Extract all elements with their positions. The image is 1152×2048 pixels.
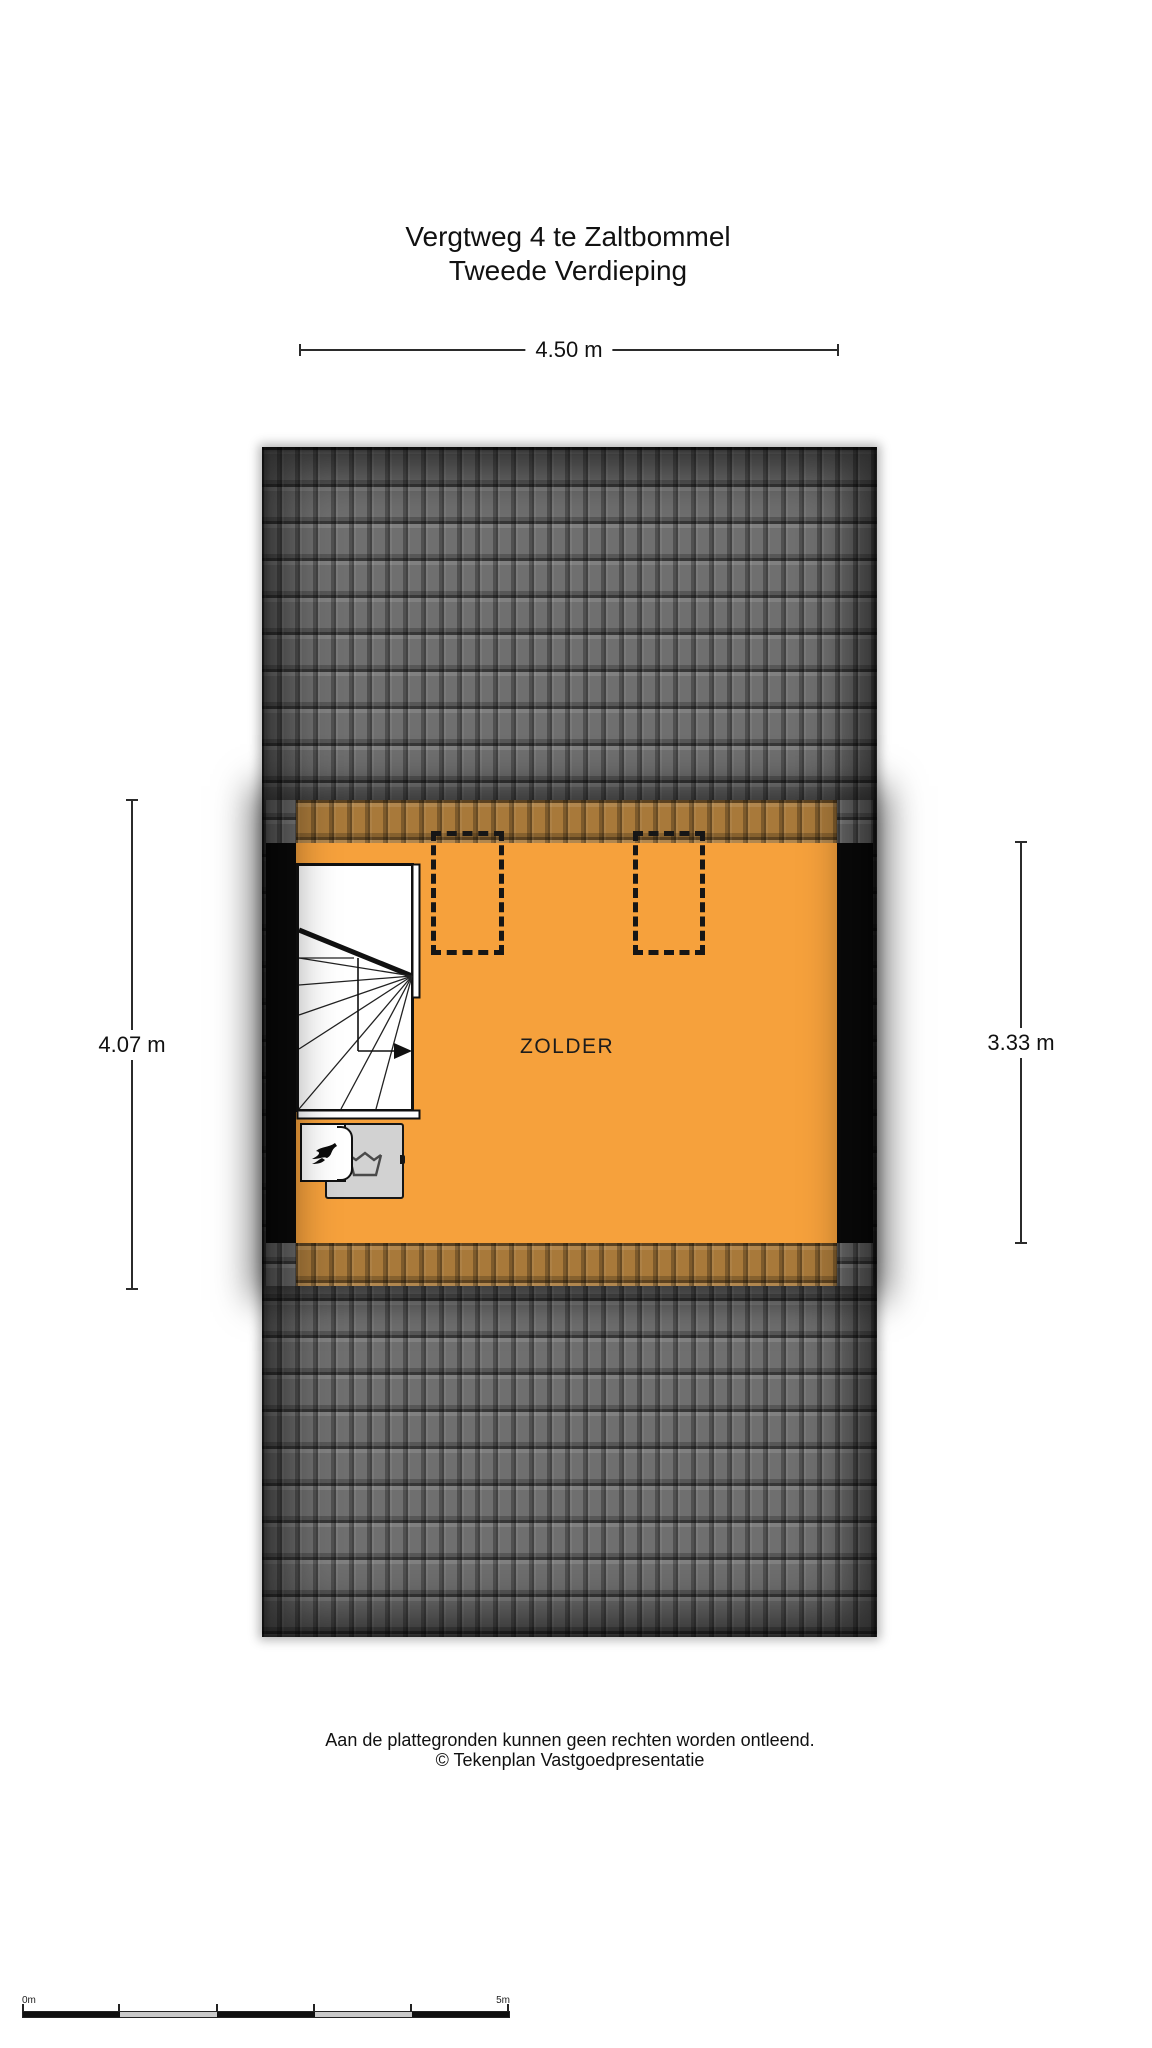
scale-bar-segments xyxy=(22,2011,510,2018)
disclaimer-line2: © Tekenplan Vastgoedpresentatie xyxy=(0,1750,1146,1770)
flame-icon xyxy=(308,1140,338,1166)
scale-segment xyxy=(120,2012,217,2017)
room-label: ZOLDER xyxy=(520,1035,614,1059)
scale-segment xyxy=(412,2012,509,2017)
disclaimer: Aan de plattegronden kunnen geen rechten… xyxy=(0,1730,1146,1770)
washing-machine-knob xyxy=(400,1155,405,1164)
dimension-line-top: 4.50 m xyxy=(300,349,838,351)
scale-segment xyxy=(23,2012,120,2017)
dimension-label-left: 4.07 m xyxy=(88,1030,175,1060)
page-title: Vergtweg 4 te Zaltbommel Tweede Verdiepi… xyxy=(0,220,1144,288)
staircase xyxy=(296,863,421,1121)
scale-bar: 0m 5m xyxy=(22,1995,510,2019)
dimension-label-top: 4.50 m xyxy=(525,335,612,365)
scale-segment xyxy=(315,2012,412,2017)
disclaimer-line1: Aan de plattegronden kunnen geen rechten… xyxy=(0,1730,1146,1750)
wall-left xyxy=(266,843,296,1243)
roof-plan: ZOLDER xyxy=(262,447,877,1637)
dimension-line-left: 4.07 m xyxy=(131,800,133,1289)
dimension-line-right: 3.33 m xyxy=(1020,842,1022,1243)
page-title-line1: Vergtweg 4 te Zaltbommel xyxy=(0,220,1144,254)
boiler-unit xyxy=(300,1123,346,1182)
page-title-line2: Tweede Verdieping xyxy=(0,254,1144,288)
scale-segment xyxy=(217,2012,314,2017)
scale-start-label: 0m xyxy=(22,1995,36,2006)
skylight-icon xyxy=(431,831,504,955)
wall-right xyxy=(837,843,873,1243)
roof-band-top xyxy=(296,800,837,843)
dimension-label-right: 3.33 m xyxy=(977,1028,1064,1058)
roof-band-bottom xyxy=(296,1243,837,1286)
skylight-icon xyxy=(633,831,705,955)
